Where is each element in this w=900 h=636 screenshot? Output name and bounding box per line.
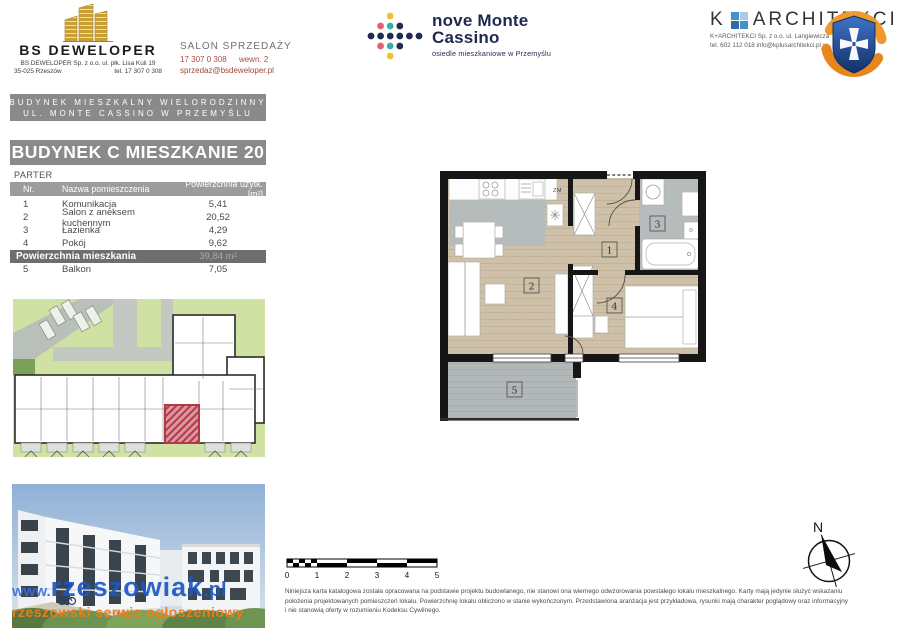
room-label-4: 4 (611, 302, 617, 313)
north-label: N (813, 519, 823, 535)
row-nr: 5 (10, 264, 62, 275)
scale-tick: 0 (285, 571, 290, 580)
watermark-www: www. (12, 583, 51, 600)
scale-tick: 1 (315, 571, 320, 580)
bath-cabinet (682, 192, 699, 216)
disclaimer-line-1: Niniejsza karta katalogowa została oprac… (285, 587, 885, 597)
developer-address: BS DEWELOPER Sp. z o.o. ul. płk. Lisa Ku… (12, 60, 164, 67)
sales-office-title: SALON SPRZEDAŻY (180, 41, 300, 52)
przemysl-crest-badge-icon (818, 2, 890, 86)
estate-dots-logo-icon (366, 8, 424, 64)
washing-machine (642, 179, 664, 205)
developer-address-2: 35-025 Rzeszów tel. 17 307 0 308 (12, 68, 164, 75)
area-table: Nr. Nazwa pomieszczenia Powierzchnia uży… (10, 182, 266, 276)
scale-tick: 3 (375, 571, 380, 580)
watermark-tagline: rzeszowski serwis ogłoszeniowy (12, 604, 265, 620)
col-header-name: Nazwa pomieszczenia (62, 184, 170, 194)
architect-name-k: K (710, 9, 726, 31)
table-row: 2 Salon z aneksem kuchennym 20,52 (10, 211, 266, 224)
sideboard (555, 274, 568, 334)
developer-block: BS DEWELOPER BS DEWELOPER Sp. z o.o. ul.… (12, 2, 164, 75)
room-label-3: 3 (654, 220, 660, 231)
highlighted-unit (165, 405, 199, 443)
table-row-balcony: 5 Balkon 7,05 (10, 263, 266, 276)
developer-name: BS DEWELOPER (12, 42, 164, 58)
sofa (448, 262, 480, 336)
row-name: Balkon (62, 264, 170, 275)
estate-logo-block: nove Monte Cassino osiedle mieszkaniowe … (366, 8, 551, 64)
col-header-area: Powierzchnia użytk. [m²] (170, 179, 266, 199)
col-header-nr: Nr. (10, 184, 62, 194)
total-value: 39,84 m² (170, 251, 266, 262)
scale-bar: 0 1 2 3 4 5 (283, 554, 445, 582)
unit-title-bar: BUDYNEK C MIESZKANIE 20 (10, 140, 266, 165)
room-label-1: 1 (606, 246, 612, 257)
watermark-url: www.rzeszowiak.pl (12, 572, 265, 603)
pillow (683, 290, 696, 344)
estate-name-line1: nove Monte (432, 12, 551, 29)
table-row: 3 Łazienka 4,29 (10, 224, 266, 237)
architect-grid-icon (731, 12, 748, 29)
row-nr: 1 (10, 199, 62, 210)
table-header-row: Nr. Nazwa pomieszczenia Powierzchnia uży… (10, 182, 266, 196)
floor-label: PARTER (14, 170, 53, 180)
watermark-pl: .pl (203, 579, 226, 601)
sales-office-phone: 17 307 0 308 wewn. 2 (180, 55, 300, 64)
disclaimer-line-2: położenia projektowanych pomieszczeń lok… (285, 597, 885, 607)
sales-phone-ext: wewn. 2 (239, 55, 268, 64)
project-line-1: BUDYNEK MIESZKALNY WIELORODZINNY (9, 97, 266, 108)
dining-table (463, 222, 495, 258)
bath-sink (684, 222, 699, 239)
row-nr: 2 (10, 212, 62, 223)
stove (479, 179, 505, 199)
scale-tick: 2 (345, 571, 350, 580)
sales-office-email[interactable]: sprzedaz@bsdeweloper.pl (180, 66, 300, 75)
row-name: Pokój (62, 238, 170, 249)
bs-deweloper-building-icon (61, 2, 115, 42)
north-compass-icon: N (797, 512, 861, 592)
apartment-floor-plan: 1 2 3 4 5 ZM (435, 166, 711, 442)
scale-tick: 5 (435, 571, 440, 580)
row-nr: 4 (10, 238, 62, 249)
hedge (13, 359, 35, 375)
sales-office-block: SALON SPRZEDAŻY 17 307 0 308 wewn. 2 spr… (180, 41, 300, 75)
building-rendering-photo: www.rzeszowiak.pl rzeszowski serwis ogło… (12, 484, 265, 628)
terraces (21, 443, 251, 452)
watermark-main: rzeszowiak (51, 572, 204, 602)
catalog-card-page: BS DEWELOPER BS DEWELOPER Sp. z o.o. ul.… (0, 0, 900, 636)
total-label: Powierzchnia mieszkania (10, 251, 170, 262)
scale-tick: 4 (405, 571, 410, 580)
estate-subtitle: osiedle mieszkaniowe w Przemyślu (432, 49, 551, 58)
row-area: 9,62 (170, 238, 266, 249)
zm-label: ZM (553, 188, 562, 194)
room-label-5: 5 (511, 386, 517, 397)
legal-disclaimer: Niniejsza karta katalogowa została oprac… (285, 587, 885, 616)
row-area: 4,29 (170, 225, 266, 236)
table-row: 4 Pokój 9,62 (10, 237, 266, 250)
table-total-row: Powierzchnia mieszkania 39,84 m² (10, 250, 266, 263)
row-name: Łazienka (62, 225, 170, 236)
row-nr: 3 (10, 225, 62, 236)
coffee-table (485, 284, 505, 304)
sales-phone-number: 17 307 0 308 (180, 55, 227, 64)
project-header-bar: BUDYNEK MIESZKALNY WIELORODZINNY UL. MON… (10, 94, 266, 121)
room-label-2: 2 (528, 282, 534, 293)
storey-overview-plan (13, 299, 265, 457)
estate-name-line2: Cassino (432, 29, 551, 46)
row-area: 7,05 (170, 264, 266, 275)
compass-needle (821, 534, 842, 572)
estate-name-block: nove Monte Cassino osiedle mieszkaniowe … (432, 12, 551, 58)
disclaimer-line-3: i nie stanowią oferty w rozumieniu Kodek… (285, 606, 885, 616)
row-area: 5,41 (170, 199, 266, 210)
row-area: 20,52 (170, 212, 266, 223)
developer-phone: tel. 17 307 0 308 (114, 68, 162, 75)
project-line-2: UL. MONTE CASSINO W PRZEMYŚLU (23, 108, 253, 119)
developer-city: 35-025 Rzeszów (14, 68, 62, 75)
